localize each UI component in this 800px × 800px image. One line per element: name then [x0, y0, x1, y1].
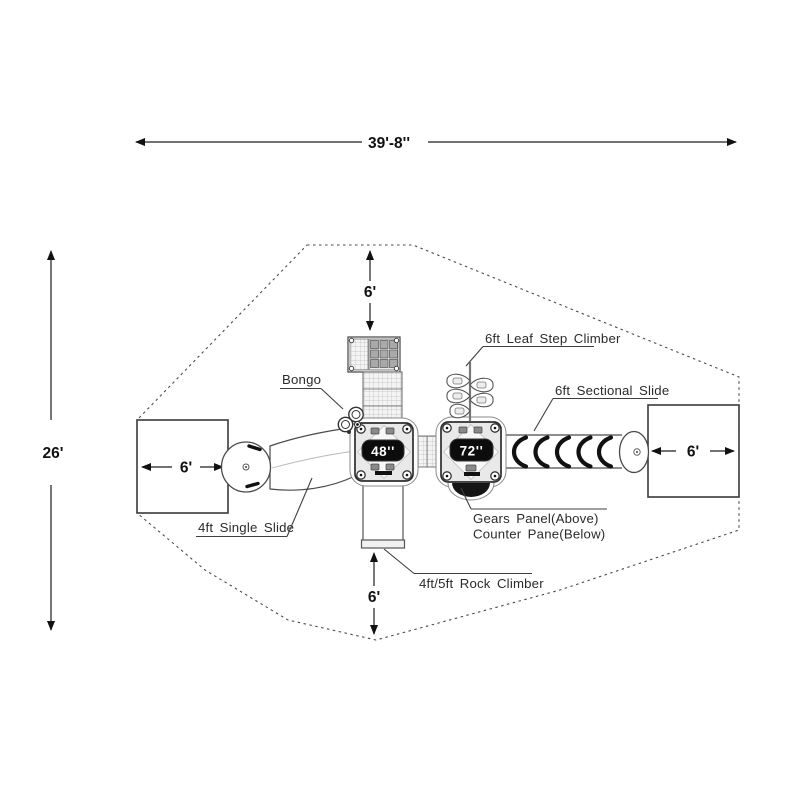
climber-net-column — [363, 372, 402, 420]
right-exit-zone-value: 6' — [687, 444, 699, 461]
bongo-drum-2 — [338, 417, 352, 431]
single-slide-exit-dot — [245, 466, 247, 468]
gears-panel-label-line2: Counter Pane(Below) — [473, 527, 605, 542]
deck-72-step-bar — [464, 472, 480, 476]
rock-climber — [362, 482, 405, 548]
deck-48-height-value: 48'' — [371, 444, 395, 459]
entry-block-mesh — [350, 339, 368, 370]
deck-48: 48'' — [350, 418, 418, 486]
left-exit-zone: 6' — [137, 420, 228, 513]
deck-48-step-bar — [375, 471, 392, 475]
bongo-mount-2 — [347, 430, 351, 434]
bongo-mount-bolt — [356, 423, 359, 426]
single-slide-label: 4ft Single Slide — [198, 520, 294, 535]
top-clearance-value: 6' — [364, 284, 376, 301]
left-exit-zone-value: 6' — [180, 460, 192, 477]
entry-block-steps — [369, 339, 398, 370]
sectional-slide-exit-dot — [636, 451, 638, 453]
overall-depth-value: 26' — [43, 445, 64, 462]
bongo-label: Bongo — [282, 372, 321, 387]
playground-plan-svg: 39'-8'' 26' 6' 6' 6' 6' — [0, 0, 800, 800]
right-exit-zone: 6' — [648, 405, 739, 497]
gears-panel-label-line1: Gears Panel(Above) — [473, 511, 599, 526]
sectional-slide-label: 6ft Sectional Slide — [555, 383, 669, 398]
rock-climber-base — [362, 540, 405, 548]
leaf-step-climber-label: 6ft Leaf Step Climber — [485, 331, 621, 346]
rock-climber-label: 4ft/5ft Rock Climber — [419, 576, 544, 591]
plan-drawing-canvas: 39'-8'' 26' 6' 6' 6' 6' — [0, 0, 800, 800]
rock-climber-wall — [363, 482, 403, 541]
overall-width-value: 39'-8'' — [368, 135, 410, 152]
deck-72-height-value: 72'' — [460, 444, 484, 459]
bottom-clearance-value: 6' — [368, 589, 380, 606]
